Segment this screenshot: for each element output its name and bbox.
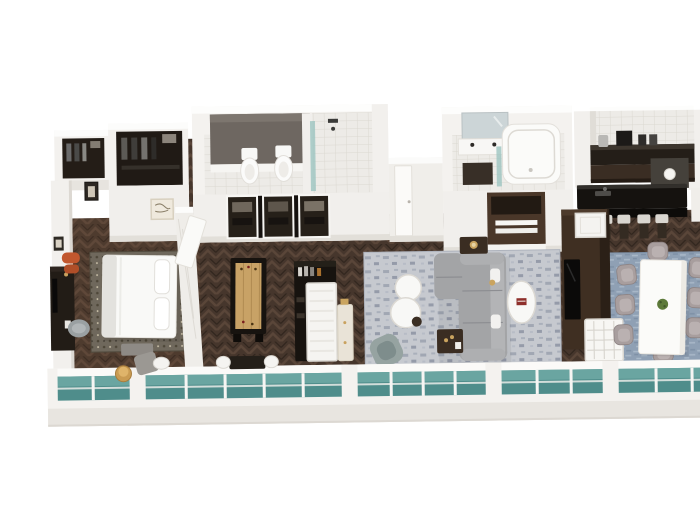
king-bed bbox=[102, 255, 181, 342]
suite-scene bbox=[44, 99, 700, 427]
bath-mat bbox=[463, 163, 493, 185]
kitchen-dining-wall bbox=[691, 187, 700, 222]
bedroom-tv bbox=[52, 279, 57, 313]
dark-frame-art bbox=[85, 182, 98, 200]
dining-chair bbox=[616, 264, 637, 286]
linen-cabinet bbox=[487, 192, 546, 253]
pillow bbox=[154, 260, 169, 294]
floor-plan-figure: Isometric 3D rendered floor plan of a lo… bbox=[40, 16, 700, 516]
display-panel bbox=[306, 283, 337, 361]
drinks-cabinet bbox=[337, 299, 353, 361]
shower-tile bbox=[312, 112, 377, 193]
room-guest-bathroom bbox=[442, 105, 574, 253]
hallway-door bbox=[395, 166, 413, 236]
tub-glass-panel bbox=[496, 146, 502, 186]
tv-screen bbox=[564, 259, 581, 319]
dining-chair bbox=[648, 242, 668, 260]
shower-glass-panel bbox=[310, 121, 316, 191]
island-sink bbox=[595, 191, 611, 196]
candle-side-table bbox=[437, 329, 463, 353]
media-console bbox=[50, 266, 75, 350]
dark-table bbox=[229, 356, 265, 370]
bidet bbox=[274, 145, 293, 181]
wardrobe-unit bbox=[299, 195, 330, 237]
room-master-bathroom bbox=[192, 104, 390, 243]
hallway-wall bbox=[388, 157, 443, 242]
dining-chair bbox=[615, 294, 636, 316]
vanity-mirror bbox=[462, 112, 508, 139]
threshold-mat bbox=[575, 213, 605, 237]
round-bar-sink bbox=[664, 169, 675, 180]
toilet bbox=[240, 148, 259, 184]
white-chair bbox=[264, 356, 278, 368]
dining-chair bbox=[614, 324, 634, 345]
white-chair bbox=[216, 356, 230, 368]
coffee-machine bbox=[616, 131, 632, 146]
pillow bbox=[154, 298, 169, 330]
bar-sink-alcove bbox=[651, 158, 689, 189]
wardrobe-unit bbox=[263, 195, 294, 237]
throw-pillow bbox=[491, 314, 501, 328]
foot-blanket bbox=[102, 255, 117, 337]
dining-table bbox=[639, 260, 691, 357]
kettle bbox=[598, 135, 608, 147]
bathtub bbox=[502, 124, 561, 185]
wardrobe-unit bbox=[227, 196, 258, 238]
floor-plan-render bbox=[40, 16, 700, 516]
white-chair bbox=[153, 357, 169, 369]
wardrobe-units-row bbox=[227, 195, 330, 238]
towels bbox=[495, 220, 537, 226]
games-window-table-set bbox=[216, 356, 278, 370]
lamp-side-table-top bbox=[460, 237, 488, 254]
shuffleboard-table bbox=[230, 258, 266, 342]
sketch-art-frame bbox=[151, 199, 173, 219]
oval-coffee-table bbox=[507, 281, 536, 323]
